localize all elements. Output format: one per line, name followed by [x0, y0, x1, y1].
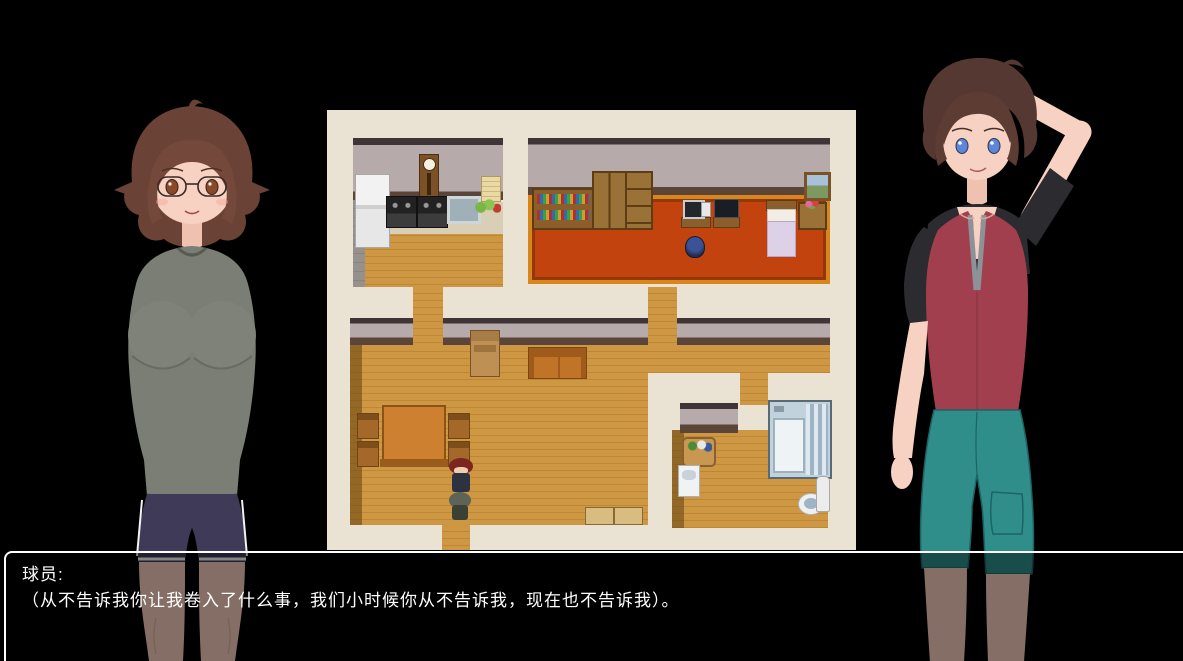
bed [766, 200, 797, 257]
vegetables [475, 198, 501, 215]
bathtub [768, 400, 832, 479]
bathroom-door-corridor [740, 373, 768, 405]
flower-table [798, 202, 827, 230]
game-screen: 球员: （从不告诉我你让我卷入了什么事，我们小时候你从不告诉我，现在也不告诉我）… [0, 0, 1183, 661]
dialogue-speaker: 球员: [22, 562, 1183, 588]
wardrobe [592, 171, 627, 230]
stove [417, 196, 448, 228]
tv [713, 198, 740, 228]
hallway-wall [677, 318, 830, 345]
bathroom-wall [680, 403, 738, 433]
male-vest [926, 211, 977, 412]
chair [448, 413, 470, 439]
dining-table [382, 405, 446, 467]
water-heater [816, 476, 830, 512]
tub [773, 418, 805, 473]
stool [685, 236, 705, 258]
male-shorts [921, 410, 1034, 574]
floor-mats [585, 507, 643, 525]
kitchen-room [353, 138, 503, 287]
dresser [625, 171, 653, 230]
shower-head [774, 406, 784, 412]
cardboard-box [470, 330, 500, 377]
chair [357, 413, 379, 439]
sofa [528, 347, 587, 379]
corridor-kitchen [413, 287, 443, 345]
bedroom-room [528, 138, 830, 287]
stove [386, 196, 417, 228]
hallway-wall [350, 318, 413, 345]
shower-curtain [806, 404, 828, 475]
exit-corridor [442, 525, 470, 550]
house-map [327, 110, 856, 550]
boy-sprite-facing-up [448, 492, 472, 522]
corridor-bedroom [648, 287, 677, 345]
painting [804, 172, 831, 201]
refrigerator [355, 174, 390, 248]
girl-sprite-facing-down [448, 458, 474, 494]
bedroom-wall [528, 138, 830, 195]
bookshelf [532, 188, 594, 230]
computer-desk [681, 198, 711, 228]
female-shirt [128, 246, 255, 496]
wash-sink [678, 465, 700, 497]
chair [357, 441, 379, 467]
dialogue-box[interactable]: 球员: （从不告诉我你让我卷入了什么事，我们小时候你从不告诉我，现在也不告诉我）… [4, 551, 1183, 661]
dialogue-text: （从不告诉我你让我卷入了什么事，我们小时候你从不告诉我，现在也不告诉我）。 [22, 588, 1183, 614]
laundry-basket [682, 437, 716, 467]
hall-extension-floor [648, 345, 830, 373]
grandfather-clock [419, 154, 439, 202]
